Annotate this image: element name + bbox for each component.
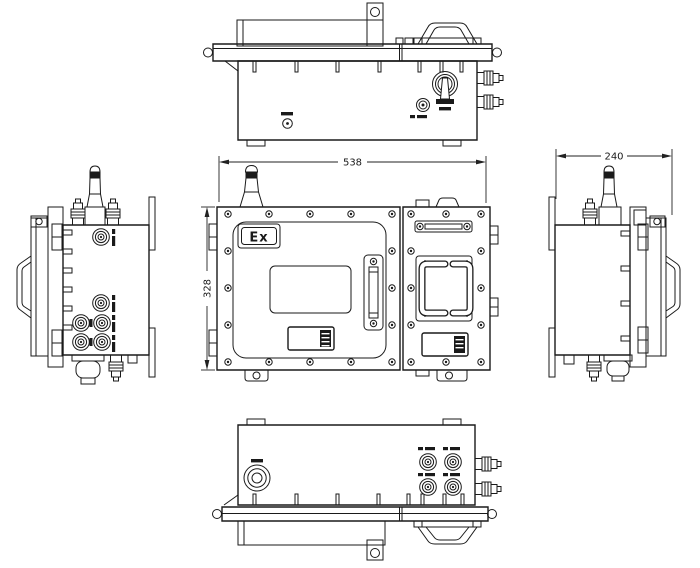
hinge-blocks <box>52 224 62 356</box>
flange-eyelet <box>488 510 497 519</box>
handle-hump <box>436 198 459 207</box>
bolt-bosses <box>63 230 72 330</box>
bnc-connectors <box>418 447 461 495</box>
height-dimension-label: 328 <box>203 279 214 298</box>
lifting-eye-hole <box>371 8 380 17</box>
ex-marking-label: Ex <box>249 231 268 246</box>
switch-label-smudge <box>439 107 451 110</box>
foot <box>247 419 265 425</box>
plug <box>128 355 137 363</box>
width-dimension: 538 <box>219 156 486 203</box>
door-profile <box>646 218 666 356</box>
antenna <box>85 166 105 225</box>
ex-marking-plate: Ex <box>238 224 280 248</box>
enclosure-body-side <box>555 225 630 355</box>
width-dimension-label: 538 <box>343 158 362 169</box>
top-view <box>204 3 504 146</box>
right-side-view: 240 <box>549 149 680 381</box>
bnc-connectors <box>73 229 116 352</box>
gasket-plate <box>416 256 472 321</box>
cable-gland <box>475 482 501 496</box>
cable-gland <box>583 199 597 225</box>
door-handle <box>364 255 383 330</box>
latch-tab <box>396 38 403 44</box>
foot <box>443 419 461 425</box>
front-view: 538 328 Ex <box>201 156 498 381</box>
mounting-bracket <box>549 197 555 250</box>
lifting-eye-hole <box>371 549 380 558</box>
foot <box>443 140 461 146</box>
bottom-flange <box>213 507 497 521</box>
carry-handle <box>414 521 481 544</box>
left-side-view <box>17 166 155 384</box>
left-door-panel <box>217 207 400 370</box>
latch-tab <box>405 38 413 44</box>
round-connector <box>244 459 270 491</box>
display-window <box>270 266 351 313</box>
cable-gland <box>109 355 123 381</box>
bolt-bosses <box>253 61 463 72</box>
foot <box>247 140 265 146</box>
mounting-bracket <box>149 328 155 377</box>
connector-label-smudge <box>251 459 263 462</box>
top-flange <box>204 44 502 61</box>
door-profile <box>31 218 48 356</box>
door-handle-profile <box>666 256 680 318</box>
cable-gland <box>71 199 85 225</box>
latch-tab <box>416 370 429 376</box>
toggle-switch-icon <box>433 72 458 111</box>
right-door-hinges <box>490 226 498 316</box>
power-label-smudge <box>410 115 427 118</box>
nameplate <box>288 327 334 350</box>
foot <box>245 370 268 381</box>
depth-dimension-label: 240 <box>604 152 623 163</box>
flange-eyelet <box>213 510 222 519</box>
cable-gland <box>106 199 120 225</box>
indicator-light <box>281 112 293 128</box>
handle-bar <box>415 221 472 232</box>
power-connector <box>410 99 430 119</box>
bottom-connector <box>604 355 632 381</box>
plug <box>564 355 574 364</box>
flange-eyelet <box>493 48 502 57</box>
indicator-label-smudge <box>281 112 293 115</box>
lid-profile <box>237 20 383 46</box>
latch-tab <box>416 200 429 207</box>
bottom-connector <box>72 355 104 384</box>
foot <box>437 370 467 381</box>
flange-eyelet <box>204 48 213 57</box>
mounting-bracket <box>549 328 555 377</box>
antenna <box>599 166 621 225</box>
height-dimension: 328 <box>201 207 215 370</box>
bolt-bosses <box>621 231 630 341</box>
mounting-bracket <box>149 197 155 250</box>
cable-gland <box>477 71 503 85</box>
cable-gland <box>475 457 501 471</box>
enclosure-body-bottom <box>238 425 475 505</box>
carry-handle <box>414 23 481 44</box>
cable-gland <box>587 355 601 381</box>
drawing-canvas: 538 328 Ex <box>0 0 700 568</box>
nameplate <box>422 333 468 356</box>
bottom-view <box>213 419 502 560</box>
door-handle-profile <box>17 256 31 318</box>
engineering-drawing: 538 328 Ex <box>0 0 700 568</box>
flange-block <box>634 210 646 225</box>
lid-profile <box>238 521 385 545</box>
bolt-bosses <box>253 494 464 505</box>
cable-gland <box>477 95 503 109</box>
antenna <box>240 166 263 208</box>
